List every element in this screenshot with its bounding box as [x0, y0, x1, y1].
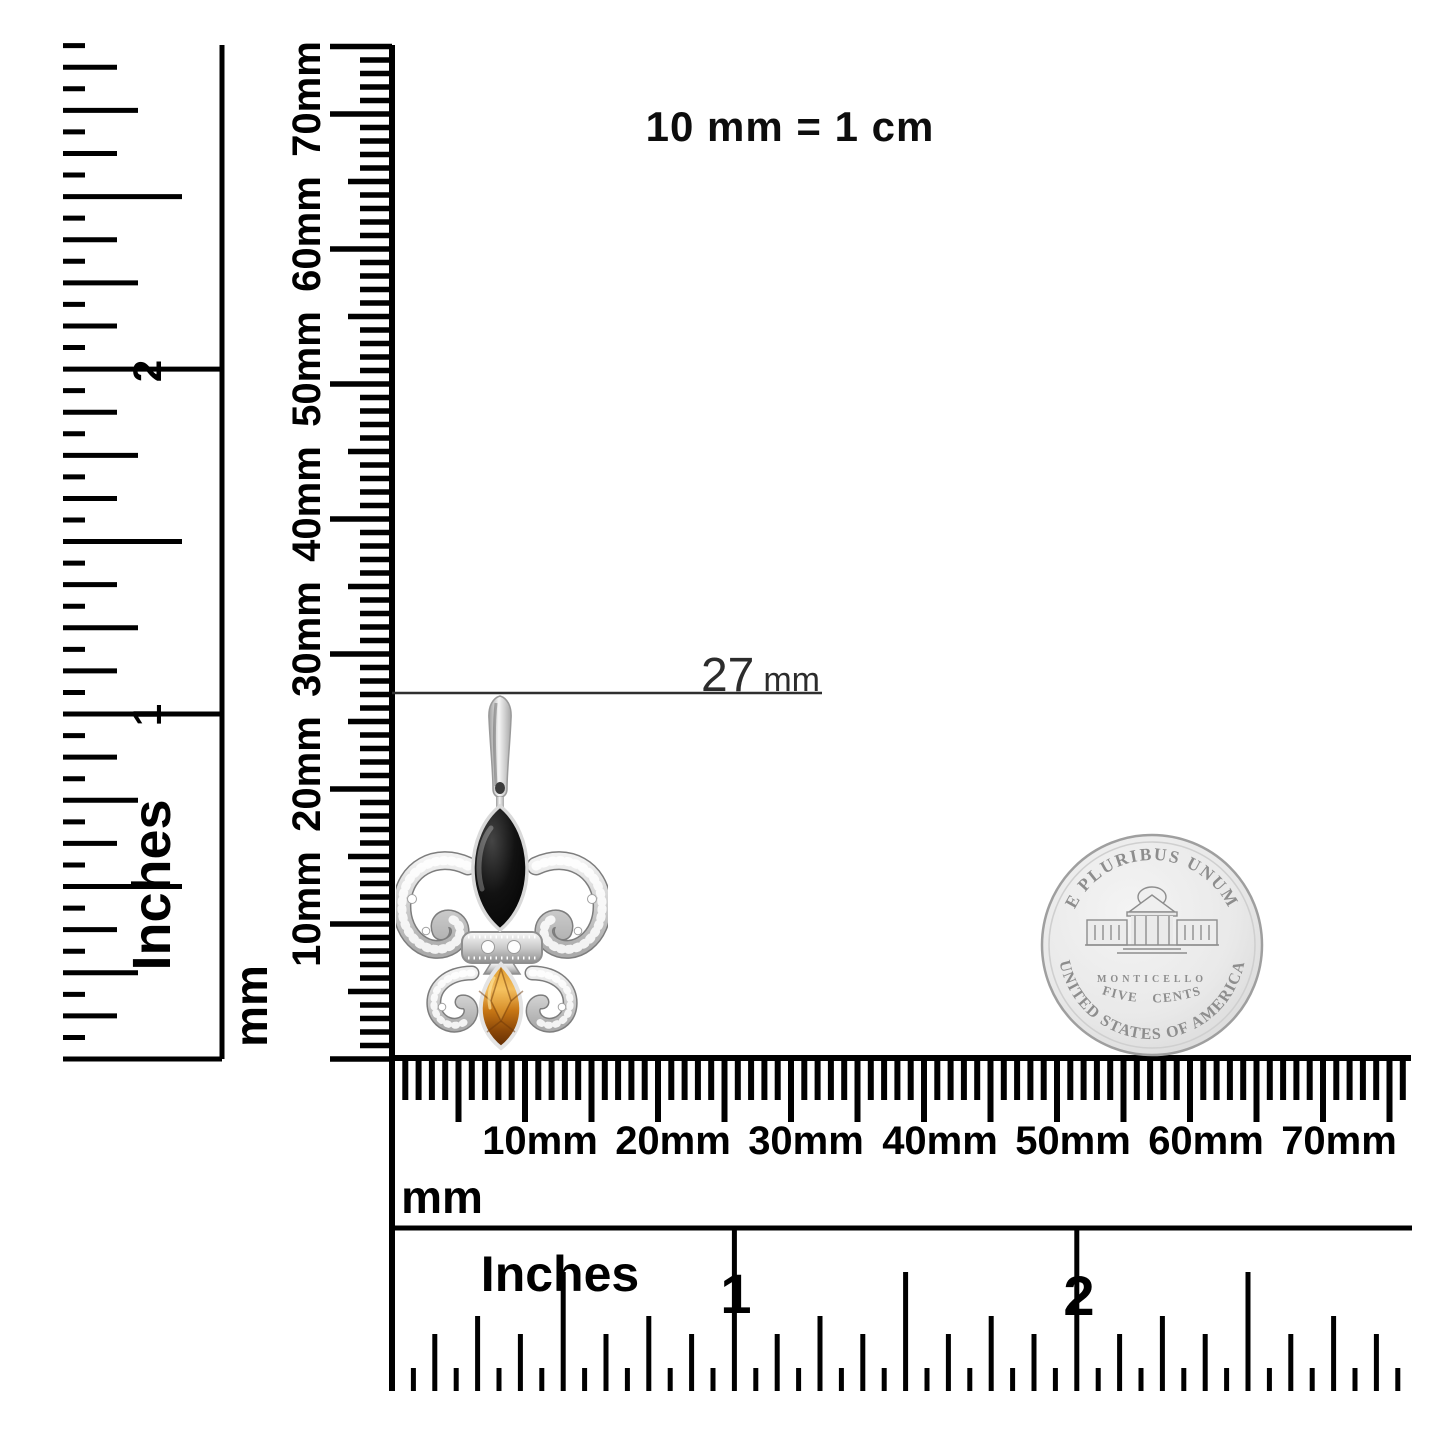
citrine-stone: [479, 964, 523, 1048]
vertical-mm-ruler-label: 30mm: [287, 581, 327, 697]
vertical-mm-ruler-label: 20mm: [287, 716, 327, 832]
measurement-value: 27: [701, 649, 754, 702]
horizontal-mm-ruler-label: 70mm: [1281, 1121, 1397, 1161]
horizontal-inch-ruler-label: 1: [720, 1266, 751, 1322]
diamond-accent: [508, 941, 521, 954]
product-measurement-scene: 10mm 20mm 30mm 40mm 50mm 60mm 70mm mm 1 …: [0, 0, 1445, 1445]
coin-graphic: E PLURIBUS UNUM UNITED STATES OF AMERICA…: [1042, 835, 1262, 1055]
horizontal-mm-ruler-unit: mm: [401, 1174, 483, 1220]
horizontal-mm-ruler-label: 60mm: [1148, 1121, 1264, 1161]
horizontal-mm-ruler-label: 20mm: [615, 1121, 731, 1161]
horizontal-mm-ruler-label: 30mm: [748, 1121, 864, 1161]
diamond-accent: [438, 1003, 446, 1011]
diamond-accent: [482, 941, 495, 954]
diamond-accent: [558, 1003, 566, 1011]
onyx-stone: [473, 806, 527, 930]
horizontal-mm-ruler-ticks: [389, 1058, 1411, 1122]
measurement-annotation: 27mm: [640, 648, 820, 703]
vertical-inch-ruler-label: 2: [128, 360, 168, 382]
conversion-note: 10 mm = 1 cm: [646, 103, 935, 151]
vertical-inch-ruler-label: 1: [128, 704, 168, 726]
horizontal-inch-ruler-unit: Inches: [481, 1249, 639, 1299]
vertical-mm-ruler-label: 60mm: [287, 176, 327, 292]
diamond-accent: [588, 895, 597, 904]
horizontal-mm-ruler-label: 50mm: [1015, 1121, 1131, 1161]
diamond-accent: [422, 927, 430, 935]
coin-image: E PLURIBUS UNUM UNITED STATES OF AMERICA…: [1039, 832, 1265, 1058]
bail-hole: [495, 782, 505, 794]
vertical-mm-ruler-unit: mm: [228, 965, 274, 1047]
vertical-mm-ruler-ticks: [330, 45, 392, 1391]
pendant-graphic: [402, 696, 602, 1048]
vertical-mm-ruler-label: 10mm: [287, 851, 327, 967]
horizontal-mm-ruler-label: 40mm: [882, 1121, 998, 1161]
horizontal-inch-ruler-label: 2: [1063, 1268, 1094, 1324]
vertical-mm-ruler-label: 40mm: [287, 446, 327, 562]
rulers-graphic: [0, 0, 1445, 1445]
vertical-inch-ruler-unit: Inches: [125, 799, 179, 970]
horizontal-mm-ruler-label: 10mm: [482, 1121, 598, 1161]
vertical-mm-ruler-label: 70mm: [287, 41, 327, 157]
coin-building-label: MONTICELLO: [1097, 974, 1207, 985]
pendant-image: [396, 691, 608, 1059]
measurement-unit: mm: [763, 661, 820, 699]
diamond-accent: [408, 895, 417, 904]
vertical-mm-ruler-label: 50mm: [287, 311, 327, 427]
diamond-accent: [574, 927, 582, 935]
